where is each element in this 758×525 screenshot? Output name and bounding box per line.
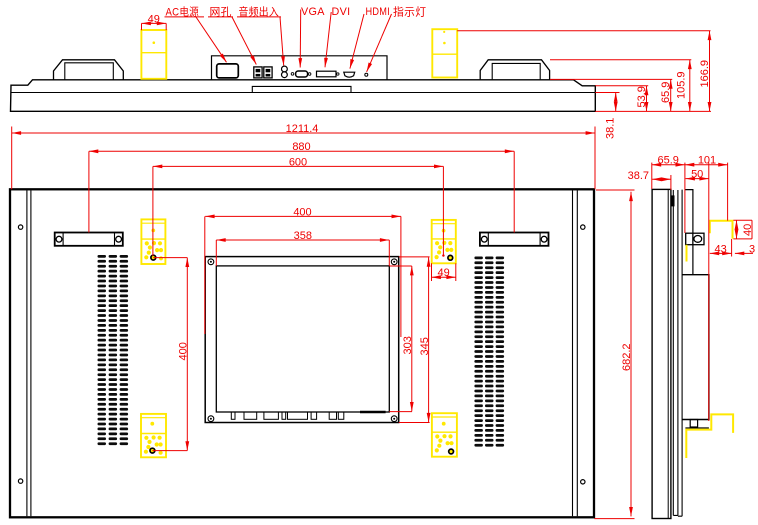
svg-text:303: 303 xyxy=(402,336,414,354)
svg-text:101: 101 xyxy=(698,155,716,167)
svg-text:VGA: VGA xyxy=(301,6,325,18)
svg-text:指示灯: 指示灯 xyxy=(393,4,426,18)
svg-text:网孔: 网孔 xyxy=(210,5,232,18)
svg-text:600: 600 xyxy=(289,156,307,168)
svg-text:AC电源: AC电源 xyxy=(166,4,200,18)
svg-text:1211.4: 1211.4 xyxy=(286,123,319,135)
svg-text:65.9: 65.9 xyxy=(660,82,672,103)
svg-text:HDMI: HDMI xyxy=(366,6,391,18)
svg-text:DVI: DVI xyxy=(332,6,351,18)
svg-text:400: 400 xyxy=(178,342,190,360)
svg-text:400: 400 xyxy=(293,206,311,218)
svg-text:65.9: 65.9 xyxy=(657,155,678,167)
svg-text:358: 358 xyxy=(294,230,312,242)
svg-text:682.2: 682.2 xyxy=(621,343,633,371)
svg-text:53.9: 53.9 xyxy=(636,86,648,107)
svg-text:38.7: 38.7 xyxy=(628,170,649,182)
svg-text:50: 50 xyxy=(691,169,703,181)
svg-text:43: 43 xyxy=(715,244,727,256)
svg-text:345: 345 xyxy=(419,337,431,355)
svg-text:音频出入: 音频出入 xyxy=(239,4,280,18)
svg-text:3: 3 xyxy=(749,244,755,256)
svg-text:105.9: 105.9 xyxy=(676,71,688,99)
svg-text:166.9: 166.9 xyxy=(699,60,711,88)
svg-text:38.1: 38.1 xyxy=(605,118,617,139)
svg-text:49: 49 xyxy=(437,267,449,279)
svg-text:880: 880 xyxy=(292,141,310,153)
svg-text:40: 40 xyxy=(742,224,754,236)
